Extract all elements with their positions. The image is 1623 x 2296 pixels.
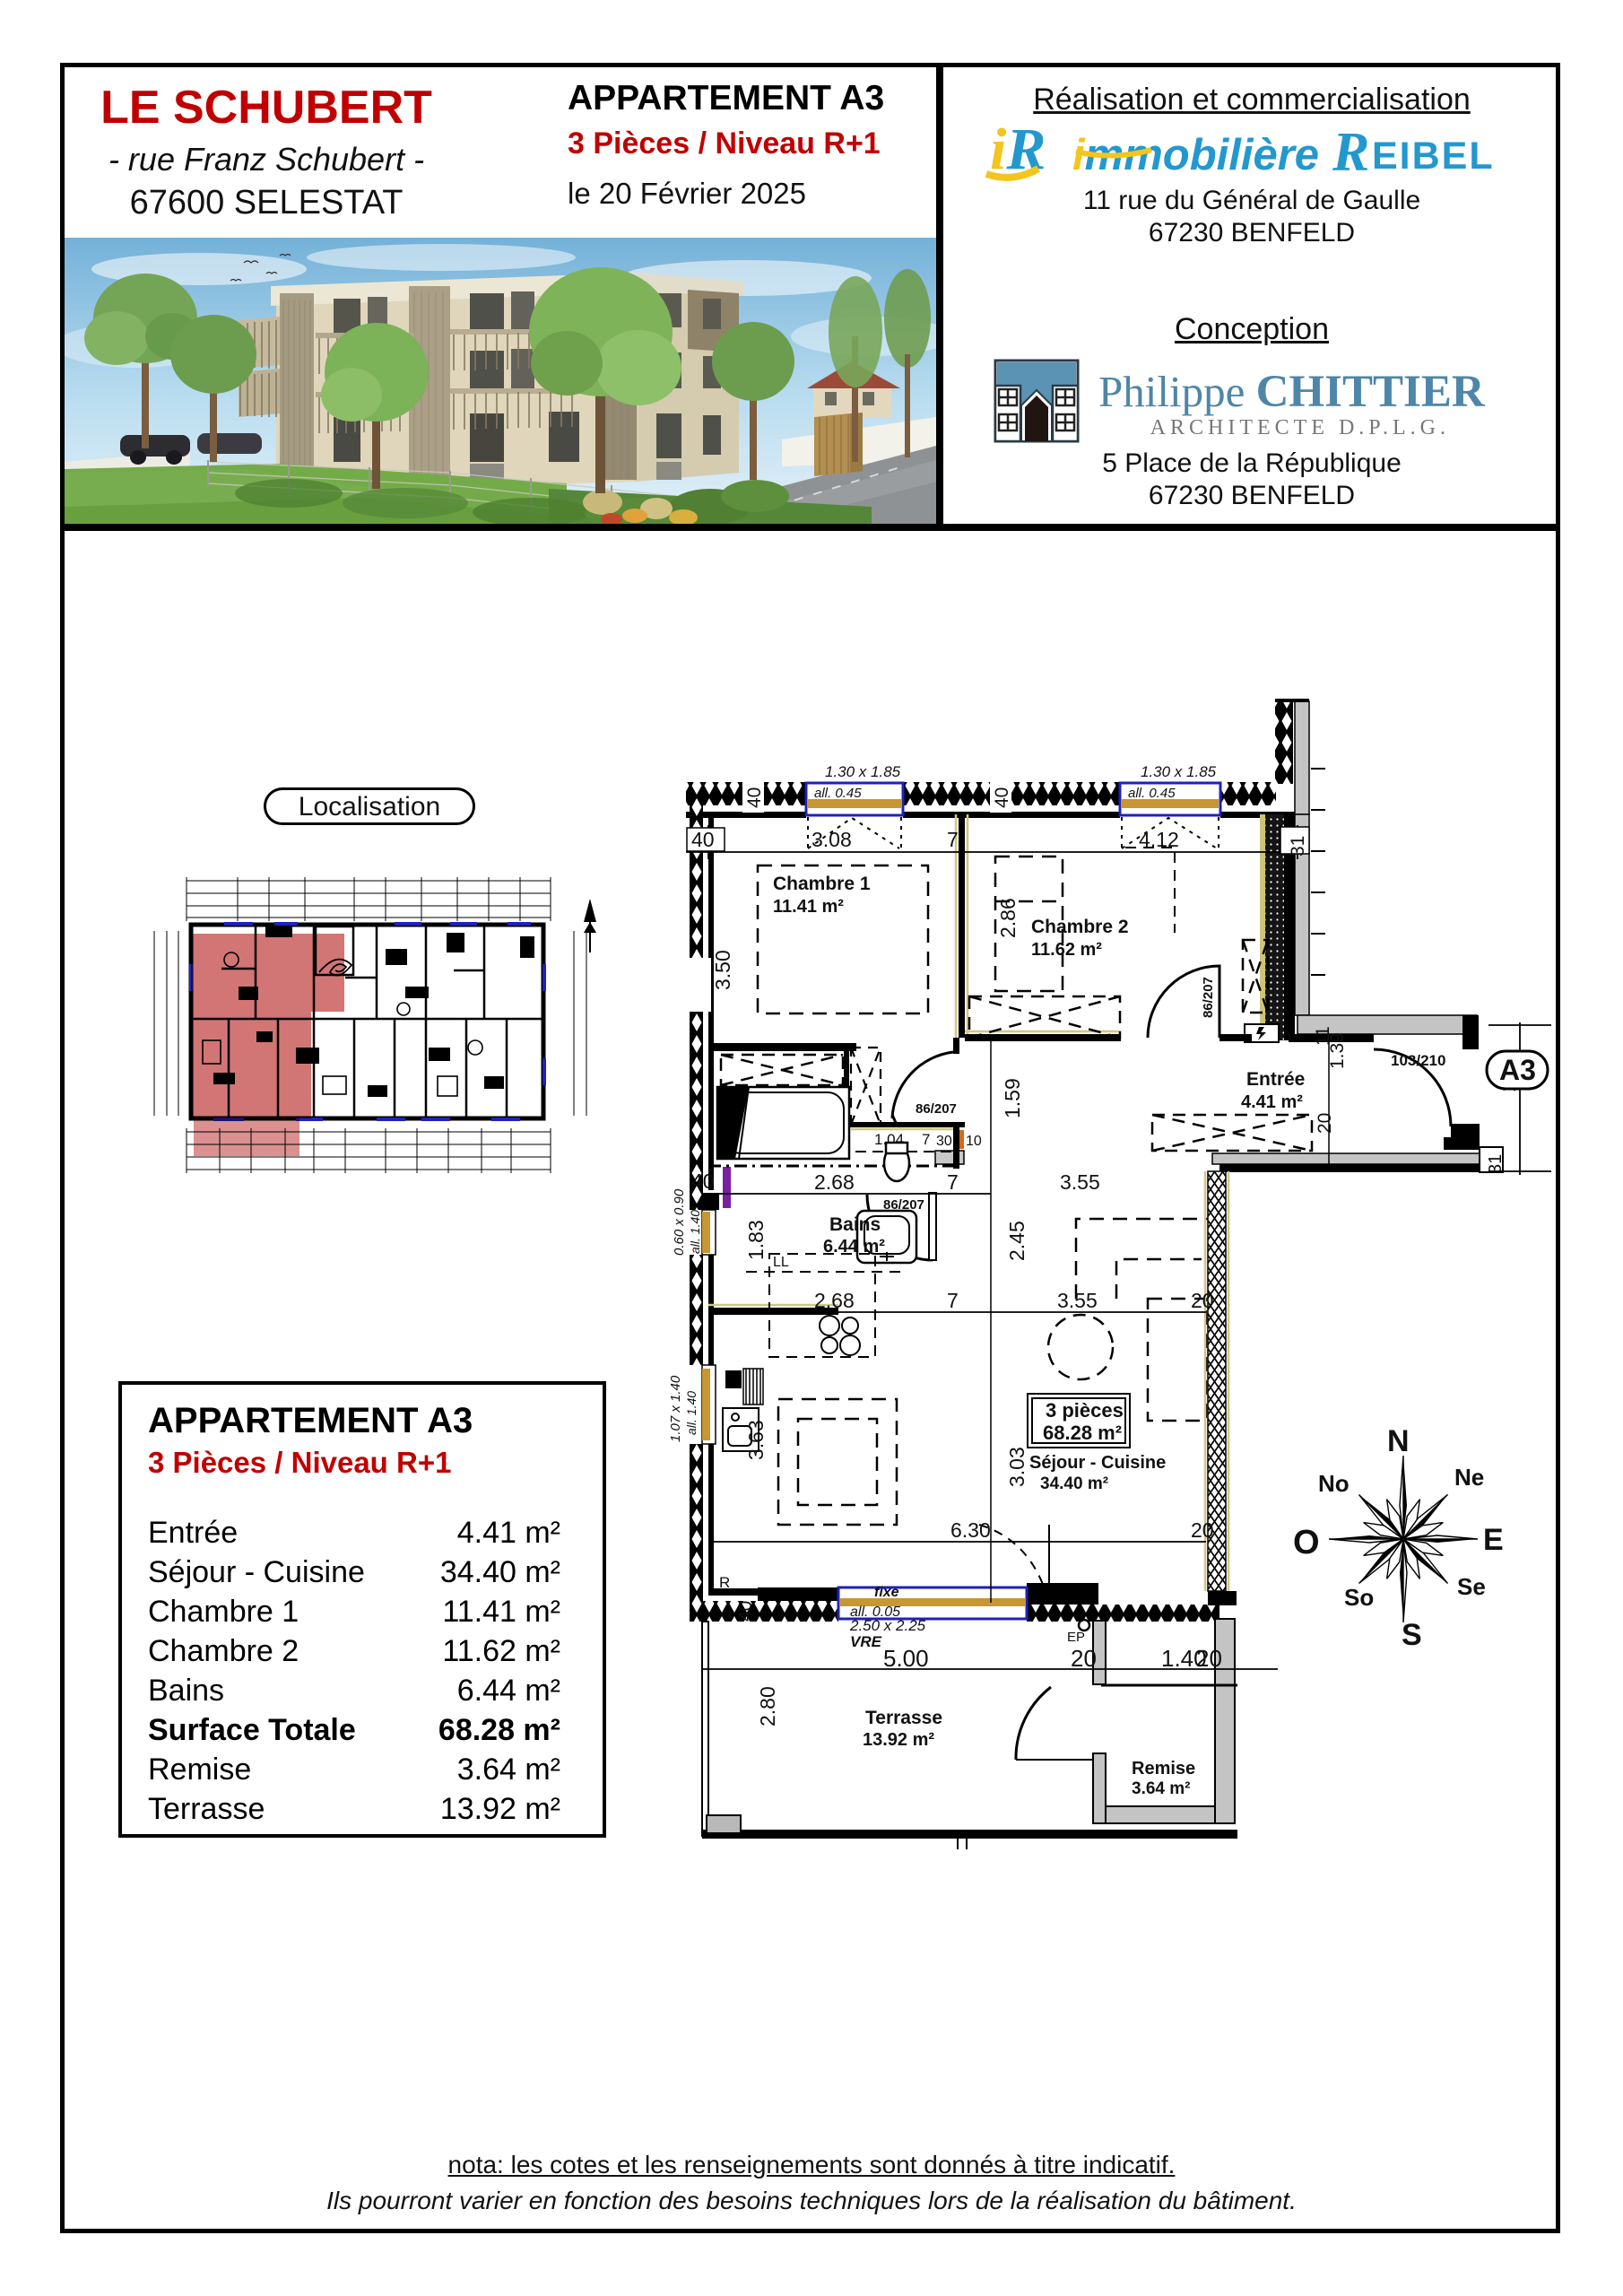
svg-text:4.12: 4.12: [1139, 828, 1179, 851]
svg-text:7: 7: [947, 1170, 959, 1194]
svg-text:3.50: 3.50: [711, 950, 734, 990]
svg-text:VRE: VRE: [850, 1633, 882, 1650]
svg-text:O: O: [1293, 1524, 1320, 1561]
svg-text:0.60 x 0.90: 0.60 x 0.90: [672, 1188, 687, 1256]
svg-text:40: 40: [691, 828, 715, 851]
svg-text:10: 10: [966, 1134, 982, 1149]
svg-text:2.45: 2.45: [1005, 1221, 1028, 1261]
svg-text:13.92 m²: 13.92 m²: [863, 1730, 934, 1750]
svg-text:4.41 m²: 4.41 m²: [1241, 1092, 1303, 1112]
svg-text:6.30: 6.30: [950, 1518, 991, 1542]
svg-text:1.30 x 1.85: 1.30 x 1.85: [825, 763, 901, 780]
svg-text:So: So: [1344, 1584, 1374, 1611]
svg-text:Chambre 1: Chambre 1: [773, 874, 871, 894]
svg-text:3.03: 3.03: [1005, 1447, 1028, 1487]
svg-text:40: 40: [992, 787, 1012, 808]
svg-text:2.86: 2.86: [996, 898, 1020, 938]
svg-text:Ne: Ne: [1454, 1464, 1484, 1491]
svg-text:2.68: 2.68: [814, 1289, 855, 1312]
svg-text:6.44 m²: 6.44 m²: [823, 1237, 885, 1257]
svg-text:103/210: 103/210: [1391, 1052, 1445, 1069]
svg-text:20: 20: [1191, 1289, 1214, 1312]
svg-text:No: No: [1318, 1470, 1350, 1497]
svg-text:Se: Se: [1457, 1573, 1486, 1600]
svg-text:20: 20: [1315, 1113, 1335, 1134]
svg-text:1.83: 1.83: [744, 1220, 768, 1260]
svg-text:3.08: 3.08: [811, 828, 852, 851]
svg-text:S: S: [1402, 1618, 1422, 1652]
svg-text:N: N: [1387, 1424, 1410, 1458]
svg-text:40: 40: [744, 787, 765, 808]
svg-text:2.80: 2.80: [756, 1686, 779, 1726]
svg-text:3.63: 3.63: [744, 1420, 768, 1460]
svg-text:fixe: fixe: [874, 1585, 899, 1600]
svg-text:7: 7: [922, 1131, 930, 1148]
svg-text:1.59: 1.59: [1001, 1078, 1024, 1118]
svg-text:11.62 m²: 11.62 m²: [1031, 940, 1102, 960]
svg-text:3.64 m²: 3.64 m²: [1132, 1779, 1190, 1798]
svg-text:1.07 x 1.40: 1.07 x 1.40: [668, 1375, 683, 1442]
svg-text:40: 40: [691, 1170, 715, 1193]
svg-text:Entrée: Entrée: [1246, 1069, 1305, 1090]
svg-text:34.40 m²: 34.40 m²: [1040, 1474, 1108, 1493]
svg-text:20: 20: [1071, 1645, 1097, 1672]
svg-text:E: E: [1483, 1523, 1504, 1557]
svg-text:30: 30: [936, 1134, 952, 1149]
svg-text:R: R: [1332, 122, 1369, 183]
svg-text:Terrasse: Terrasse: [865, 1708, 942, 1728]
svg-text:3.55: 3.55: [1057, 1289, 1098, 1312]
svg-text:5.00: 5.00: [883, 1645, 929, 1672]
svg-text:86/207: 86/207: [916, 1101, 957, 1117]
svg-text:20: 20: [1196, 1645, 1222, 1672]
svg-text:1.30 x 1.85: 1.30 x 1.85: [1141, 763, 1217, 780]
svg-text:40: 40: [735, 1601, 756, 1622]
svg-text:all. 1.40: all. 1.40: [688, 1210, 702, 1254]
svg-text:3 pièces: 3 pièces: [1046, 1399, 1124, 1422]
svg-text:all. 0.45: all. 0.45: [1128, 786, 1176, 801]
svg-text:20: 20: [1191, 1518, 1214, 1542]
svg-text:Remise: Remise: [1132, 1759, 1195, 1779]
svg-text:all. 0.45: all. 0.45: [814, 786, 862, 801]
svg-text:A3: A3: [1499, 1054, 1536, 1086]
svg-text:7: 7: [947, 1289, 959, 1312]
svg-text:EP: EP: [1067, 1630, 1085, 1645]
svg-text:68.28 m²: 68.28 m²: [1043, 1422, 1122, 1444]
svg-text:Séjour - Cuisine: Séjour - Cuisine: [1029, 1453, 1166, 1473]
svg-text:7: 7: [947, 828, 959, 851]
svg-text:R: R: [719, 1574, 730, 1591]
svg-text:31: 31: [1288, 836, 1308, 857]
svg-text:EIBEL: EIBEL: [1372, 135, 1495, 178]
svg-text:86/207: 86/207: [1201, 977, 1216, 1018]
svg-text:Chambre 2: Chambre 2: [1031, 917, 1129, 937]
svg-text:3.55: 3.55: [1060, 1170, 1100, 1194]
svg-text:2.50 x 2.25: 2.50 x 2.25: [849, 1617, 926, 1634]
svg-text:Bains: Bains: [829, 1214, 881, 1235]
svg-text:11.41 m²: 11.41 m²: [773, 897, 844, 917]
svg-text:all. 1.40: all. 1.40: [684, 1391, 699, 1435]
svg-text:LL: LL: [773, 1255, 789, 1270]
svg-text:1.39: 1.39: [1327, 1032, 1348, 1069]
svg-text:2.68: 2.68: [814, 1170, 855, 1194]
